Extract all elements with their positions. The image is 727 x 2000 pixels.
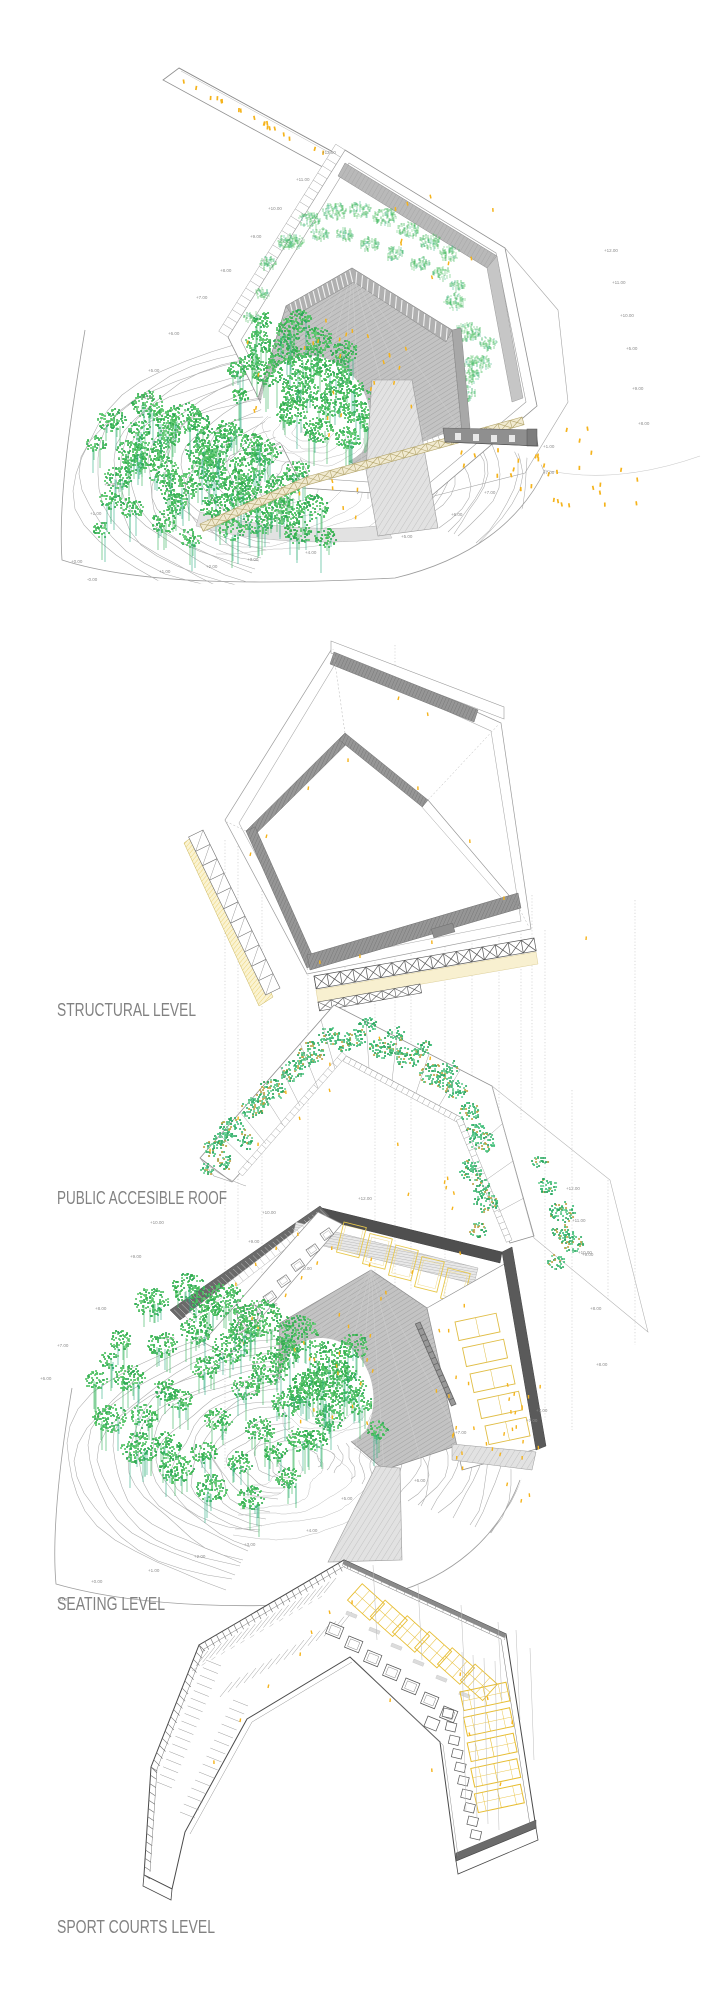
svg-text:+1.00: +1.00 xyxy=(90,511,102,516)
svg-text:+7.00: +7.00 xyxy=(455,1430,467,1435)
svg-text:+6.00: +6.00 xyxy=(451,512,463,517)
svg-text:+8.00: +8.00 xyxy=(220,268,232,273)
svg-text:+2.00: +2.00 xyxy=(206,564,218,569)
svg-text:+10.00: +10.00 xyxy=(262,1210,276,1215)
svg-text:+7.00: +7.00 xyxy=(536,1408,548,1413)
svg-text:+7.00: +7.00 xyxy=(57,1343,69,1348)
svg-text:+8.00: +8.00 xyxy=(590,1306,602,1311)
svg-text:+4.00: +4.00 xyxy=(305,550,317,555)
svg-text:+9.00: +9.00 xyxy=(130,1254,142,1259)
svg-text:+11.00: +11.00 xyxy=(296,177,310,182)
svg-text:+8.00: +8.00 xyxy=(95,1306,107,1311)
svg-text:+2.00: +2.00 xyxy=(194,1554,206,1559)
svg-text:+6.00: +6.00 xyxy=(168,331,180,336)
svg-text:+0.00: +0.00 xyxy=(91,1579,103,1584)
svg-text:+7.00: +7.00 xyxy=(196,295,208,300)
svg-text:STRUCTURAL LEVEL: STRUCTURAL LEVEL xyxy=(57,1000,196,1020)
svg-text:-0.00: -0.00 xyxy=(87,577,98,582)
svg-text:+6.00: +6.00 xyxy=(414,1478,426,1483)
svg-text:SEATING LEVEL: SEATING LEVEL xyxy=(57,1594,165,1614)
svg-text:+10.00: +10.00 xyxy=(620,313,634,318)
svg-text:+1.00: +1.00 xyxy=(159,569,171,574)
svg-text:+3.00: +3.00 xyxy=(244,1542,256,1547)
svg-text:+1.00: +1.00 xyxy=(543,444,555,449)
svg-text:+7.00: +7.00 xyxy=(484,490,496,495)
svg-text:+12.00: +12.00 xyxy=(566,1186,580,1191)
svg-text:+9.00: +9.00 xyxy=(250,234,262,239)
svg-text:+1.00: +1.00 xyxy=(148,1568,160,1573)
svg-text:PUBLIC ACCESIBLE ROOF: PUBLIC ACCESIBLE ROOF xyxy=(57,1188,227,1208)
svg-text:+7.00: +7.00 xyxy=(526,1418,538,1423)
svg-text:+5.00: +5.00 xyxy=(341,1496,353,1501)
svg-text:+10.00: +10.00 xyxy=(268,206,282,211)
svg-text:+8.00: +8.00 xyxy=(638,421,650,426)
svg-text:+9.00: +9.00 xyxy=(248,1239,260,1244)
svg-text:+9.00: +9.00 xyxy=(632,386,644,391)
svg-text:+4.00: +4.00 xyxy=(141,395,153,400)
svg-text:+12.00: +12.00 xyxy=(322,150,336,155)
svg-text:+5.00: +5.00 xyxy=(401,534,413,539)
svg-text:+9.00: +9.00 xyxy=(582,1252,594,1257)
svg-text:SPORT COURTS LEVEL: SPORT COURTS LEVEL xyxy=(57,1917,215,1937)
svg-text:+12.00: +12.00 xyxy=(604,248,618,253)
svg-text:+6.00: +6.00 xyxy=(40,1376,52,1381)
svg-text:+12.00: +12.00 xyxy=(358,1196,372,1201)
svg-text:+4.00: +4.00 xyxy=(306,1528,318,1533)
svg-text:-7.00: -7.00 xyxy=(544,470,555,475)
svg-text:+0.00: +0.00 xyxy=(71,559,83,564)
svg-text:+11.00: +11.00 xyxy=(572,1218,586,1223)
svg-text:+8.00: +8.00 xyxy=(596,1362,608,1367)
svg-text:+10.00: +10.00 xyxy=(150,1220,164,1225)
svg-text:+5.00: +5.00 xyxy=(626,346,638,351)
svg-text:+2.00: +2.00 xyxy=(104,482,116,487)
svg-text:+11.00: +11.00 xyxy=(612,280,626,285)
svg-text:+5.00: +5.00 xyxy=(148,368,160,373)
svg-text:+3.00: +3.00 xyxy=(247,557,259,562)
